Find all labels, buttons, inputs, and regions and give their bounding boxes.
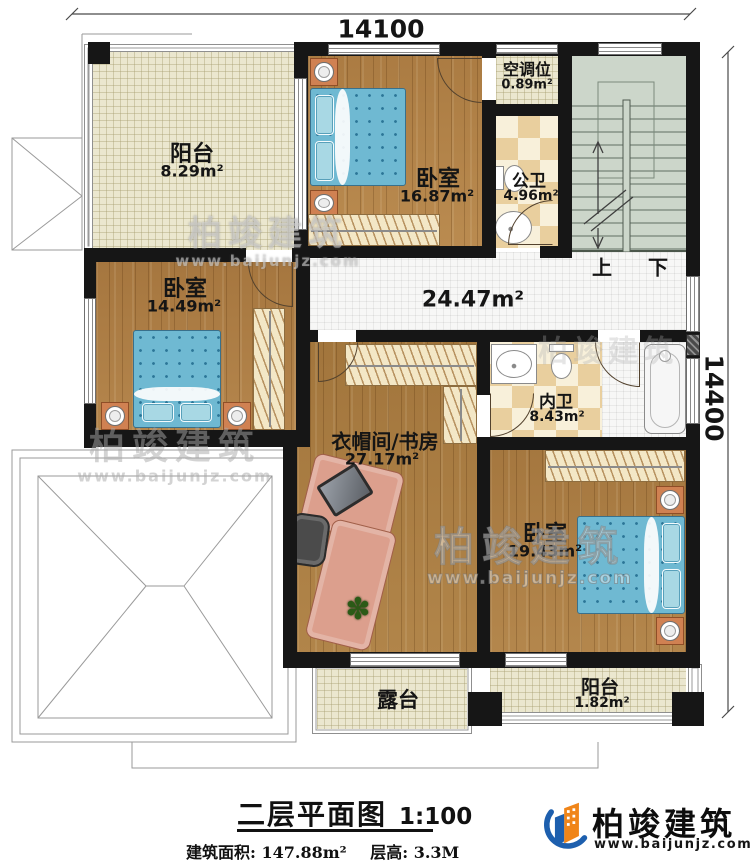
window-bathtub-east bbox=[686, 358, 700, 424]
wardrobe-study-east bbox=[443, 386, 477, 444]
bed-sheet-fold bbox=[134, 387, 220, 401]
lamp-icon bbox=[660, 621, 680, 641]
pillow bbox=[662, 569, 681, 609]
wall-balcony-south-a bbox=[84, 248, 246, 262]
balcony-top-railing-north bbox=[84, 44, 298, 52]
label-terrace-name: 露台 bbox=[377, 684, 419, 714]
wall-bedroomleft-east bbox=[296, 262, 310, 442]
window-bedroom-top bbox=[328, 44, 440, 55]
wall-bedroomtop-bath-upper bbox=[482, 42, 496, 58]
label-bedroom-right-area: 19.43m² bbox=[508, 542, 582, 561]
nightstand bbox=[656, 617, 684, 645]
post-terrace-east bbox=[468, 692, 502, 726]
dimension-right: 14400 bbox=[700, 355, 729, 442]
pillow bbox=[315, 141, 334, 181]
lamp-icon bbox=[314, 62, 334, 82]
lamp-icon bbox=[314, 194, 334, 212]
wall-study-bedroom-divider-lower bbox=[477, 437, 490, 668]
wall-bath-stairs-divider bbox=[558, 42, 572, 258]
stairs-detail bbox=[572, 56, 686, 252]
nightstand bbox=[223, 402, 251, 430]
balcony-bottom-railing-south bbox=[490, 712, 688, 724]
wall-study-west bbox=[283, 442, 297, 668]
dimension-top: 14100 bbox=[338, 15, 425, 44]
balcony-top-railing-west bbox=[84, 44, 93, 250]
wall-privatebath-south bbox=[477, 437, 700, 450]
window-bedroom-left bbox=[84, 298, 96, 404]
brand-url: www.baijunjz.com bbox=[594, 837, 750, 852]
nightstand bbox=[310, 58, 338, 86]
bed-sheet-fold bbox=[644, 517, 659, 613]
bathtub-drain-icon bbox=[659, 350, 671, 362]
post-balcony-top-corner bbox=[88, 42, 110, 64]
label-bedroom-left-area: 14.49m² bbox=[147, 297, 221, 316]
plan-scale: 1:100 bbox=[399, 804, 472, 830]
bed-bedroom-right bbox=[577, 516, 685, 614]
window-study-south bbox=[350, 653, 460, 667]
build-area: 建筑面积: 147.88m² bbox=[186, 843, 347, 862]
window-stairs bbox=[598, 43, 662, 55]
pillow bbox=[180, 403, 212, 422]
wall-ac-bath-divider bbox=[490, 104, 568, 116]
wardrobe-study-north bbox=[345, 344, 477, 386]
floorplan-page: 14100 14400 bbox=[0, 0, 750, 866]
lamp-icon bbox=[105, 406, 125, 426]
pillow bbox=[662, 523, 681, 563]
brand-logo-icon bbox=[542, 796, 590, 852]
label-bedroom-top-area: 16.87m² bbox=[400, 187, 474, 206]
label-hallway-area: 24.47m² bbox=[422, 288, 524, 313]
window-hallway-east bbox=[686, 276, 700, 332]
label-stairs-up: 上 bbox=[592, 252, 612, 281]
toilet-bowl bbox=[551, 353, 572, 379]
nightstand bbox=[656, 486, 684, 514]
bathtub-basin bbox=[650, 352, 680, 428]
label-balcony-bottom-area: 1.82m² bbox=[574, 695, 629, 711]
plant-icon: ✽ bbox=[340, 592, 376, 628]
window-balcony-bedroom bbox=[294, 78, 307, 230]
sink bbox=[496, 350, 532, 378]
bed-bedroom-left bbox=[133, 330, 221, 428]
toilet-tank bbox=[549, 344, 574, 352]
label-public-bath-area: 4.96m² bbox=[503, 188, 558, 204]
wall-pier-hatched bbox=[686, 334, 700, 356]
wall-bedroomtop-bath-lower bbox=[482, 100, 496, 258]
post-balcony-bottom-corner bbox=[672, 692, 704, 726]
bed-bedroom-top bbox=[310, 88, 406, 186]
wall-south bbox=[283, 652, 700, 668]
wardrobe-bedroom-right bbox=[545, 450, 685, 482]
title-block: 二层平面图 1:100 bbox=[237, 793, 472, 833]
lamp-icon bbox=[227, 406, 247, 426]
title-underline bbox=[237, 829, 433, 832]
label-stairs-down: 下 bbox=[648, 252, 668, 281]
wall-bedroomleft-south bbox=[84, 430, 310, 447]
pillow bbox=[142, 403, 174, 422]
wall-hall-south-b bbox=[356, 330, 598, 342]
label-private-bath-area: 8.43m² bbox=[529, 409, 584, 425]
pillow bbox=[315, 95, 334, 135]
wall-study-bedroom-divider-upper bbox=[477, 342, 490, 395]
label-study-area: 27.17m² bbox=[345, 450, 419, 469]
wall-balcony-south-b bbox=[292, 248, 310, 262]
nightstand bbox=[310, 190, 338, 216]
label-ac-slot-name: 空调位 bbox=[503, 56, 551, 80]
label-ac-slot-area: 0.89m² bbox=[501, 78, 552, 93]
window-bedroom-right-south bbox=[505, 653, 567, 667]
wardrobe-bedroom-top bbox=[308, 214, 440, 246]
floor-height: 层高: 3.3M bbox=[370, 843, 459, 862]
wall-hall-north-b bbox=[540, 246, 572, 258]
label-balcony-top-area: 8.29m² bbox=[160, 162, 223, 181]
wall-hall-south-a bbox=[310, 330, 318, 342]
wardrobe-bedroom-left bbox=[253, 308, 285, 430]
plan-title: 二层平面图 bbox=[237, 793, 387, 833]
nightstand bbox=[101, 402, 129, 430]
window-ac-slot bbox=[496, 44, 558, 54]
title-info-row: 建筑面积: 147.88m² 层高: 3.3M bbox=[186, 839, 459, 863]
bed-sheet-fold bbox=[335, 89, 350, 185]
lamp-icon bbox=[660, 490, 680, 510]
wall-hall-north-a bbox=[296, 246, 496, 258]
